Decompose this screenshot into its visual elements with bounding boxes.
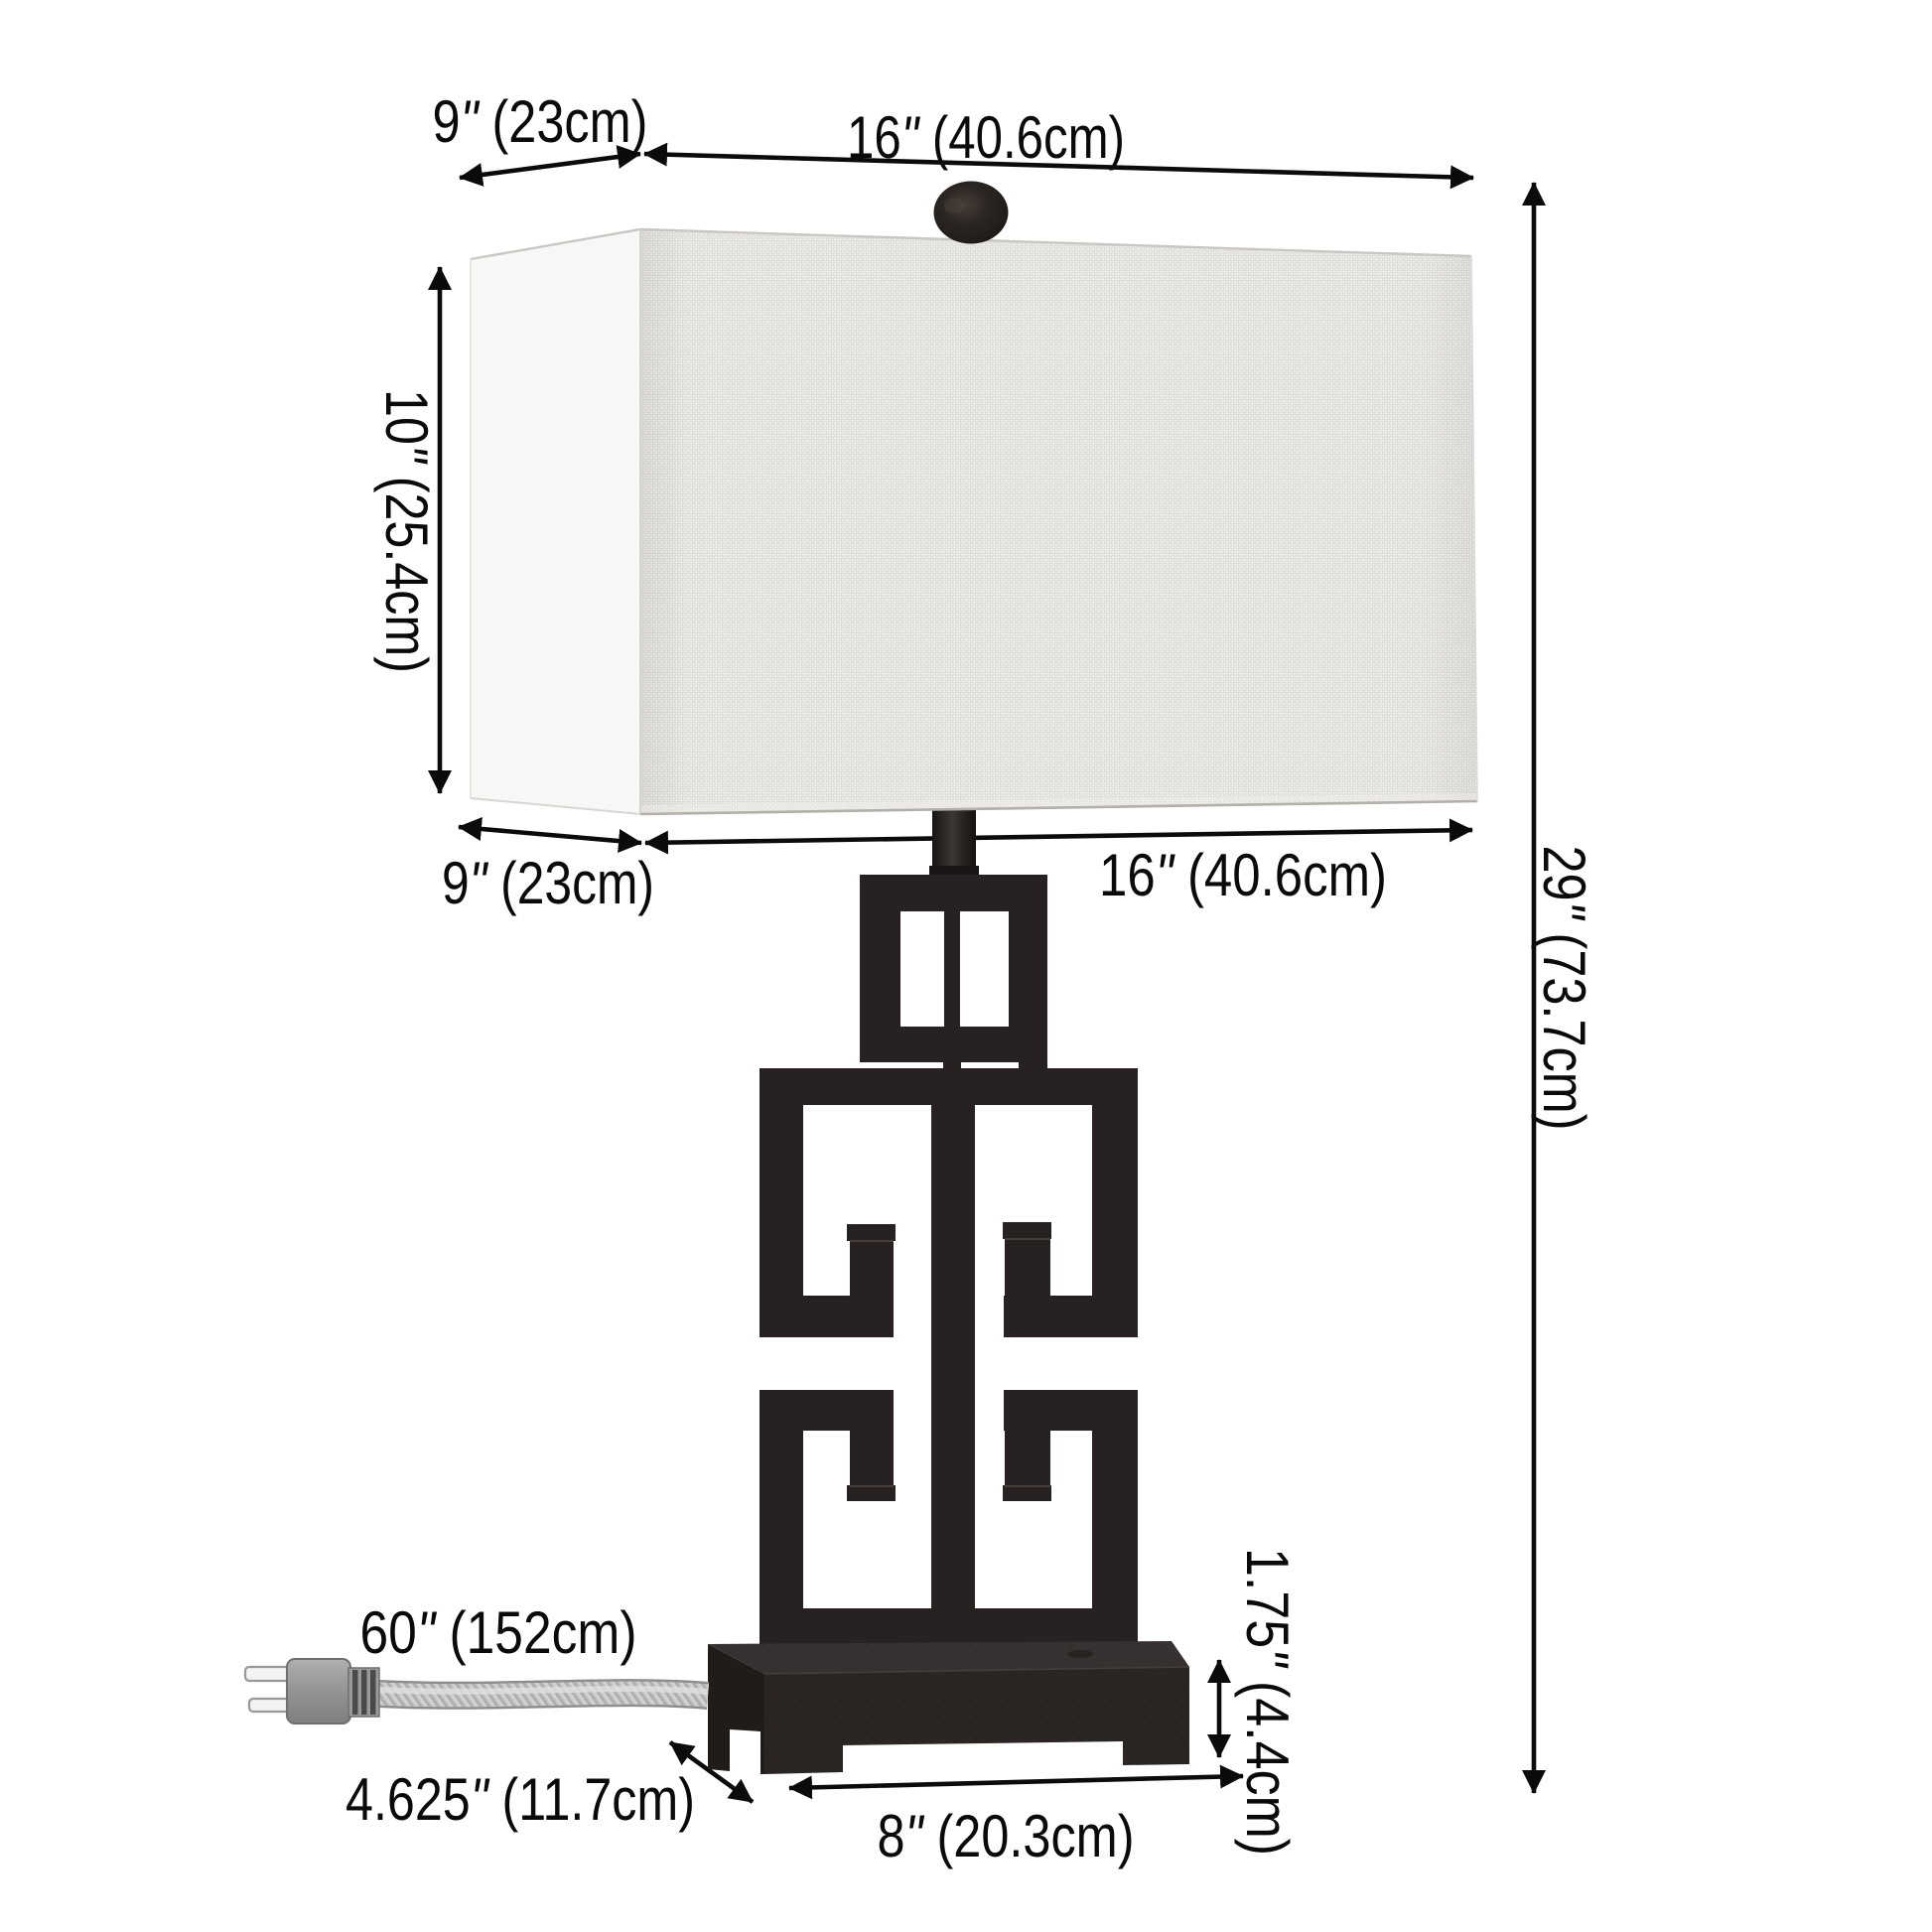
svg-text:4.625" (11.7cm): 4.625" (11.7cm): [345, 1766, 695, 1833]
svg-text:16" (40.6cm): 16" (40.6cm): [1099, 842, 1387, 908]
svg-text:1.75" (4.4cm): 1.75" (4.4cm): [1234, 1548, 1301, 1856]
svg-text:8" (20.3cm): 8" (20.3cm): [878, 1803, 1135, 1869]
svg-text:29" (73.7cm): 29" (73.7cm): [1531, 846, 1597, 1131]
svg-text:16" (40.6cm): 16" (40.6cm): [847, 104, 1125, 171]
svg-text:9" (23cm): 9" (23cm): [433, 88, 648, 155]
svg-text:10" (25.4cm): 10" (25.4cm): [373, 389, 440, 673]
svg-text:60" (152cm): 60" (152cm): [360, 1599, 637, 1666]
svg-text:9" (23cm): 9" (23cm): [442, 850, 654, 916]
